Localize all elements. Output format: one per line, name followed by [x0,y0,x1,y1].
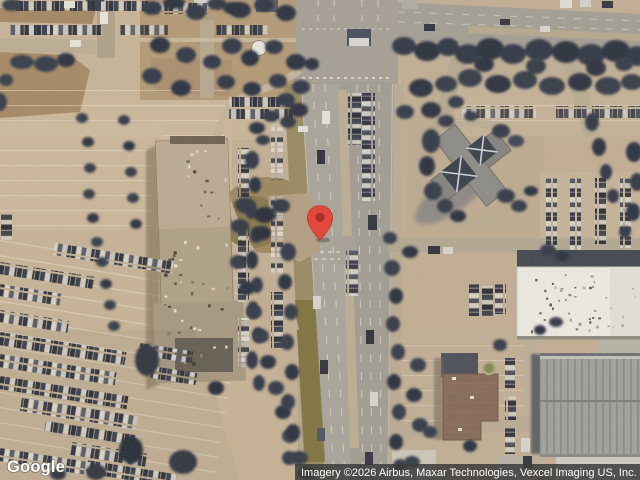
svg-text:Google: Google [7,458,65,476]
svg-text:Imagery ©2026 Airbus, Maxar Te: Imagery ©2026 Airbus, Maxar Technologies… [301,467,637,479]
